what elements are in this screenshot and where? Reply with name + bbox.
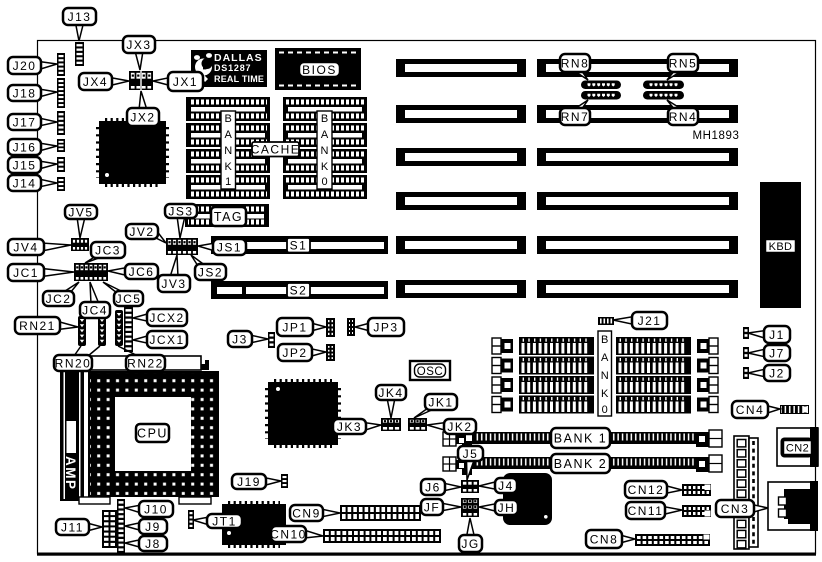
svg-text:BANK 1: BANK 1 <box>554 432 607 446</box>
svg-text:J13: J13 <box>68 10 92 24</box>
svg-text:CN10: CN10 <box>270 527 307 541</box>
svg-text:JS3: JS3 <box>168 204 193 218</box>
svg-text:JC4: JC4 <box>82 303 108 317</box>
svg-text:KBD: KBD <box>769 241 793 253</box>
svg-text:JP2: JP2 <box>282 346 307 360</box>
svg-text:JF: JF <box>424 500 440 514</box>
svg-text:J18: J18 <box>13 86 37 100</box>
svg-text:N: N <box>321 145 329 157</box>
svg-text:J16: J16 <box>13 140 37 154</box>
svg-text:JC6: JC6 <box>129 265 155 279</box>
svg-text:J17: J17 <box>13 115 37 129</box>
svg-text:RN21: RN21 <box>19 319 56 333</box>
svg-text:N: N <box>601 370 609 382</box>
svg-text:JC1: JC1 <box>13 266 39 280</box>
svg-text:DS1287: DS1287 <box>214 63 251 73</box>
svg-text:MH1893: MH1893 <box>692 130 739 142</box>
svg-text:0: 0 <box>602 404 608 416</box>
svg-text:JS2: JS2 <box>198 265 223 279</box>
svg-text:RN22: RN22 <box>127 356 164 370</box>
svg-text:J20: J20 <box>13 59 37 73</box>
svg-text:JH: JH <box>498 501 516 515</box>
svg-text:JK1: JK1 <box>428 395 453 409</box>
svg-text:B: B <box>321 113 328 125</box>
svg-text:JX1: JX1 <box>173 75 198 89</box>
svg-text:J4: J4 <box>498 479 514 493</box>
svg-text:JT1: JT1 <box>212 514 237 528</box>
svg-text:JP3: JP3 <box>373 320 398 334</box>
svg-text:S2: S2 <box>290 284 308 298</box>
svg-text:K: K <box>225 161 233 173</box>
svg-text:CPU: CPU <box>137 427 168 441</box>
svg-text:CN4: CN4 <box>736 403 765 417</box>
svg-text:RN5: RN5 <box>669 56 698 70</box>
svg-text:JK3: JK3 <box>337 420 362 434</box>
svg-text:J6: J6 <box>425 480 441 494</box>
svg-text:K: K <box>321 161 329 173</box>
svg-text:K: K <box>601 388 609 400</box>
svg-text:J19: J19 <box>237 475 261 489</box>
svg-text:J14: J14 <box>13 176 37 190</box>
svg-text:CN9: CN9 <box>292 506 321 520</box>
svg-text:RN4: RN4 <box>669 110 698 124</box>
svg-text:J15: J15 <box>13 158 37 172</box>
svg-text:JK2: JK2 <box>447 420 472 434</box>
svg-text:REAL TIME: REAL TIME <box>214 74 264 84</box>
svg-text:J1: J1 <box>769 328 785 342</box>
svg-text:B: B <box>225 113 232 125</box>
svg-text:N: N <box>224 145 232 157</box>
svg-text:JC5: JC5 <box>116 292 142 306</box>
svg-text:JCX2: JCX2 <box>149 311 184 325</box>
svg-text:JS1: JS1 <box>217 240 242 254</box>
svg-text:OSC: OSC <box>417 366 443 378</box>
svg-text:J11: J11 <box>61 520 84 534</box>
svg-text:JV2: JV2 <box>129 225 154 239</box>
svg-text:CACHE: CACHE <box>251 143 301 157</box>
svg-text:RN7: RN7 <box>561 110 590 124</box>
svg-text:JCX1: JCX1 <box>149 333 184 347</box>
svg-text:JV4: JV4 <box>13 240 38 254</box>
svg-text:RN20: RN20 <box>55 356 92 370</box>
svg-text:J21: J21 <box>638 314 662 328</box>
svg-text:J2: J2 <box>769 366 785 380</box>
svg-text:J10: J10 <box>144 502 168 516</box>
svg-text:J3: J3 <box>232 332 248 346</box>
svg-text:J9: J9 <box>145 520 161 534</box>
svg-text:JV3: JV3 <box>161 277 186 291</box>
svg-text:JP1: JP1 <box>282 320 307 334</box>
svg-text:J5: J5 <box>463 447 479 461</box>
svg-text:BANK 2: BANK 2 <box>554 457 607 471</box>
svg-text:JC2: JC2 <box>46 292 72 306</box>
svg-text:JC3: JC3 <box>95 243 121 257</box>
svg-text:JV5: JV5 <box>68 205 93 219</box>
svg-text:BIOS: BIOS <box>302 63 337 77</box>
svg-text:JX2: JX2 <box>130 110 155 124</box>
svg-text:JG: JG <box>461 537 479 551</box>
svg-text:0: 0 <box>321 176 327 188</box>
svg-text:S1: S1 <box>290 239 308 253</box>
svg-text:CN3: CN3 <box>721 502 750 516</box>
svg-text:1: 1 <box>225 176 231 188</box>
svg-text:CN8: CN8 <box>590 532 619 546</box>
svg-text:A: A <box>225 129 233 141</box>
svg-text:A: A <box>601 352 609 364</box>
svg-text:A: A <box>321 129 329 141</box>
svg-text:CN2: CN2 <box>786 443 809 455</box>
svg-text:CN12: CN12 <box>628 483 665 497</box>
svg-text:JX4: JX4 <box>83 75 108 89</box>
svg-text:AMP: AMP <box>63 456 78 491</box>
svg-text:JX3: JX3 <box>126 38 151 52</box>
svg-text:RN8: RN8 <box>561 56 590 70</box>
svg-text:TAG: TAG <box>214 210 243 224</box>
svg-text:CN11: CN11 <box>628 504 664 518</box>
svg-text:JK4: JK4 <box>378 386 403 400</box>
svg-text:J7: J7 <box>769 346 785 360</box>
svg-text:J8: J8 <box>145 537 161 551</box>
svg-text:B: B <box>601 334 608 346</box>
